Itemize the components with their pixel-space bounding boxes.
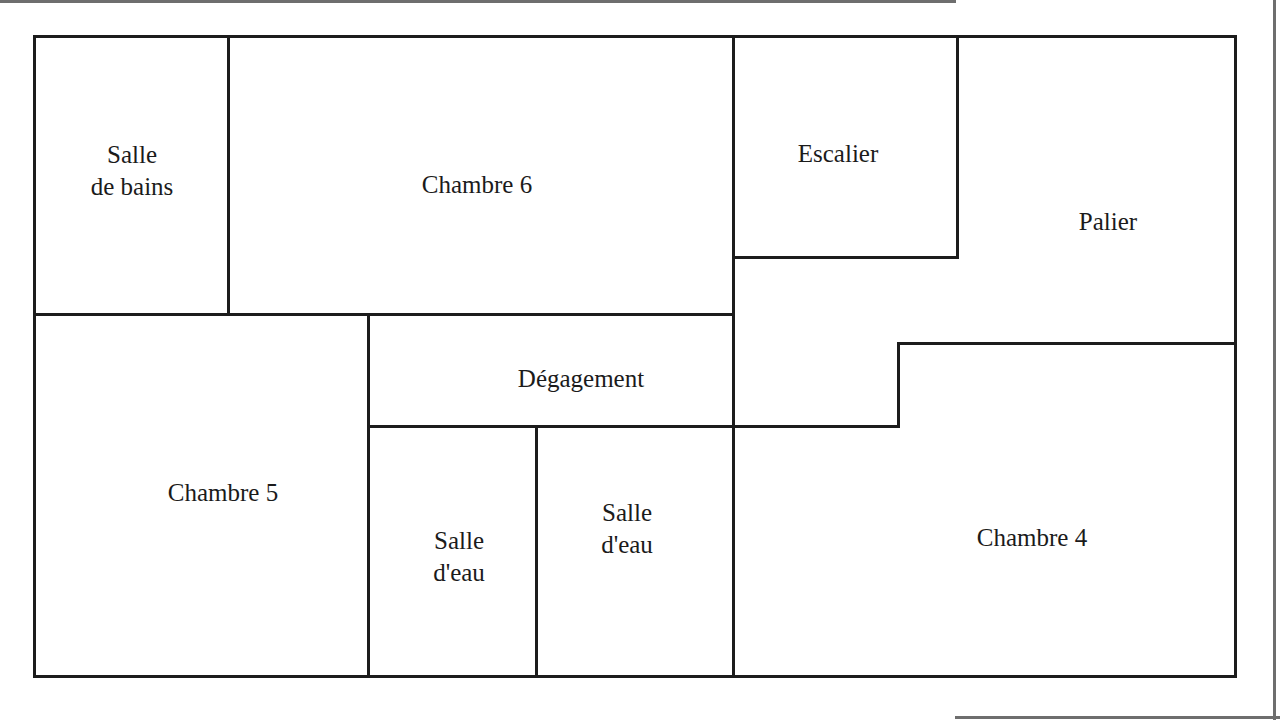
wall-degagement-bottom xyxy=(367,425,900,428)
room-label-line: Salle xyxy=(601,497,653,529)
room-label-chambre-5: Chambre 5 xyxy=(168,477,278,509)
wall-escalier-bottom xyxy=(732,256,959,259)
room-label-escalier: Escalier xyxy=(798,138,879,170)
wall-central-vertical xyxy=(732,35,735,678)
wall-salles-eau-divider xyxy=(535,425,538,678)
room-label-line: d'eau xyxy=(433,556,485,588)
page-edge-bottom-line xyxy=(955,716,1280,719)
wall-bathroom-right xyxy=(227,35,230,315)
room-label-line: d'eau xyxy=(601,528,653,560)
floor-plan: Salle de bains Chambre 6 Escalier Palier… xyxy=(0,0,1280,720)
room-label-degagement: Dégagement xyxy=(518,363,644,395)
wall-chambre5-right xyxy=(367,313,370,678)
page-edge-top-line xyxy=(0,0,956,3)
outer-wall xyxy=(33,35,1237,678)
wall-chambre4-notch-horizontal xyxy=(897,342,1237,345)
room-label-chambre-6: Chambre 6 xyxy=(422,169,532,201)
room-label-line: Salle xyxy=(433,525,485,557)
wall-chambre6-bottom xyxy=(33,313,735,316)
wall-chambre4-notch-vertical xyxy=(897,342,900,428)
room-label-salle-de-bains: Salle de bains xyxy=(91,139,174,202)
room-label-chambre-4: Chambre 4 xyxy=(977,522,1087,554)
room-label-salle-eau-ouest: Salle d'eau xyxy=(433,525,485,588)
page-edge-right-line xyxy=(1273,0,1276,720)
room-label-palier: Palier xyxy=(1079,206,1137,238)
room-label-line: Salle xyxy=(91,139,174,171)
room-label-line: de bains xyxy=(91,170,174,202)
wall-escalier-right xyxy=(956,35,959,259)
room-label-salle-eau-est: Salle d'eau xyxy=(601,497,653,560)
